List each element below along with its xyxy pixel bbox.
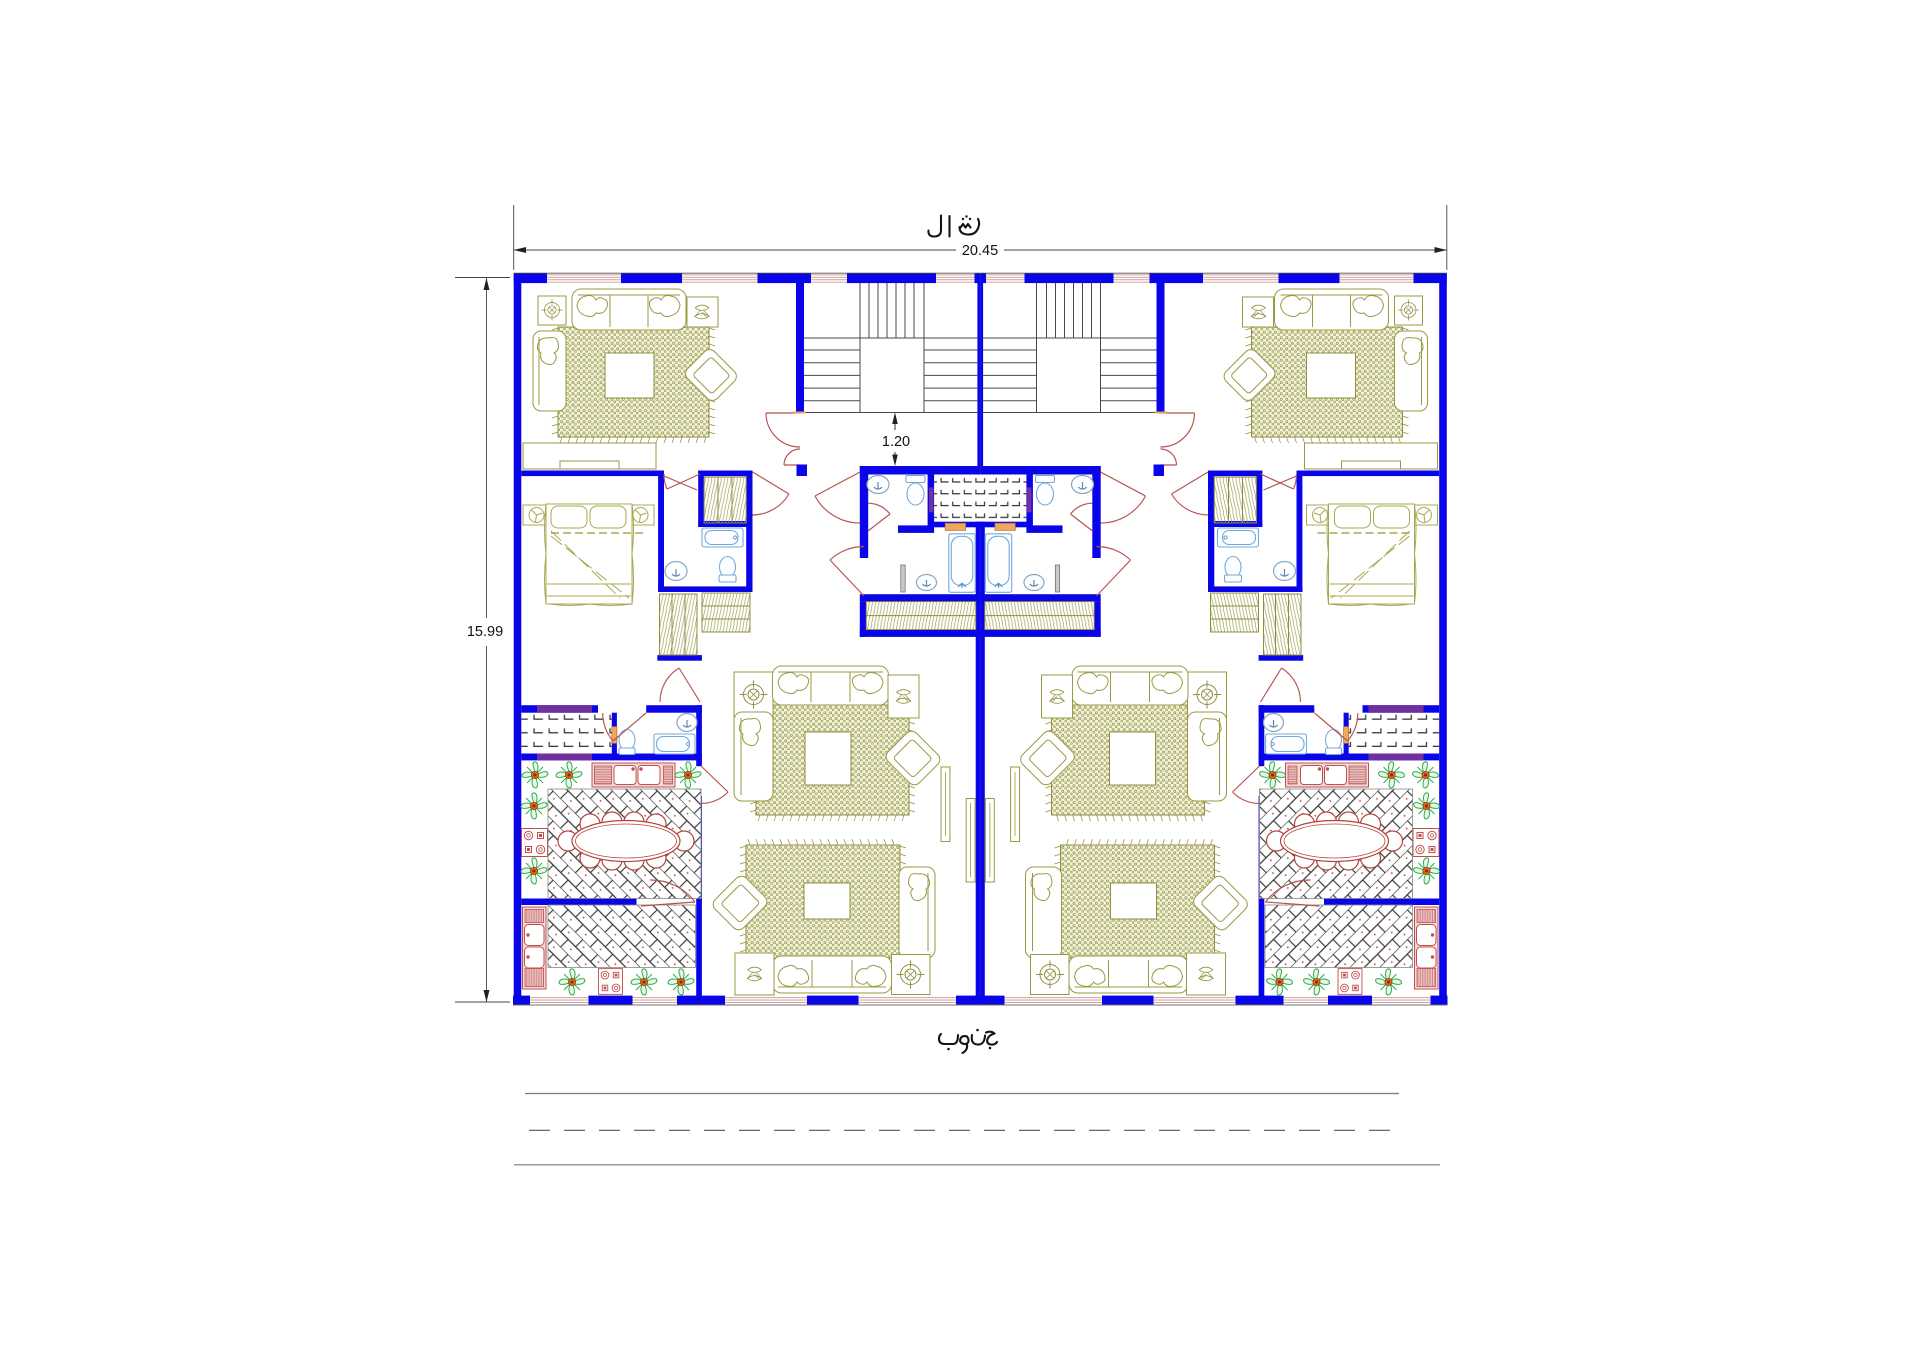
svg-text:15.99: 15.99 bbox=[467, 624, 503, 640]
svg-text:1.20: 1.20 bbox=[882, 434, 910, 450]
svg-text:20.45: 20.45 bbox=[962, 243, 998, 259]
